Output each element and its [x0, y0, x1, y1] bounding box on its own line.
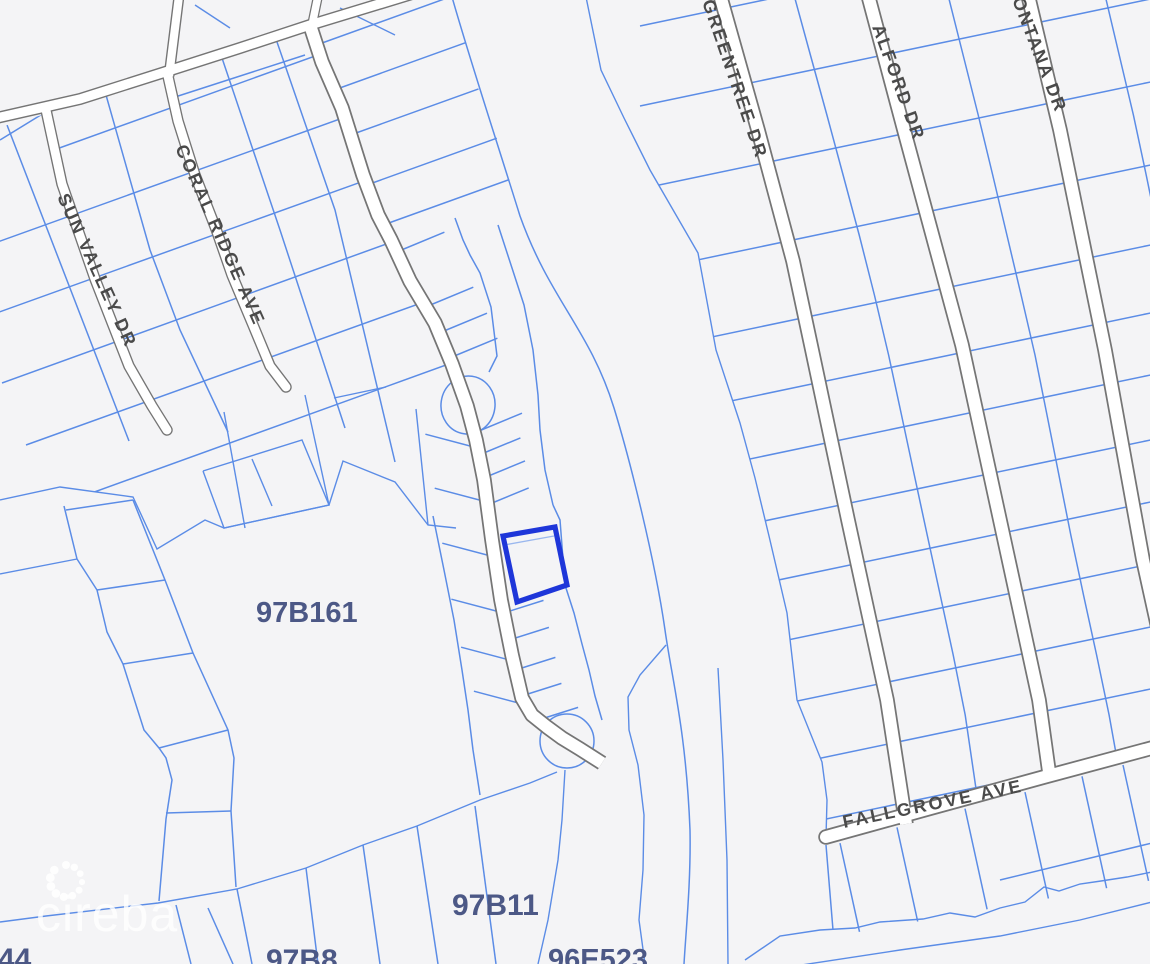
svg-text:44: 44 [0, 943, 32, 964]
svg-text:96E523: 96E523 [548, 944, 648, 964]
svg-text:97B11: 97B11 [452, 889, 539, 922]
svg-text:cireba: cireba [36, 886, 178, 942]
svg-text:97B161: 97B161 [256, 597, 358, 629]
svg-text:97B8: 97B8 [266, 944, 338, 964]
